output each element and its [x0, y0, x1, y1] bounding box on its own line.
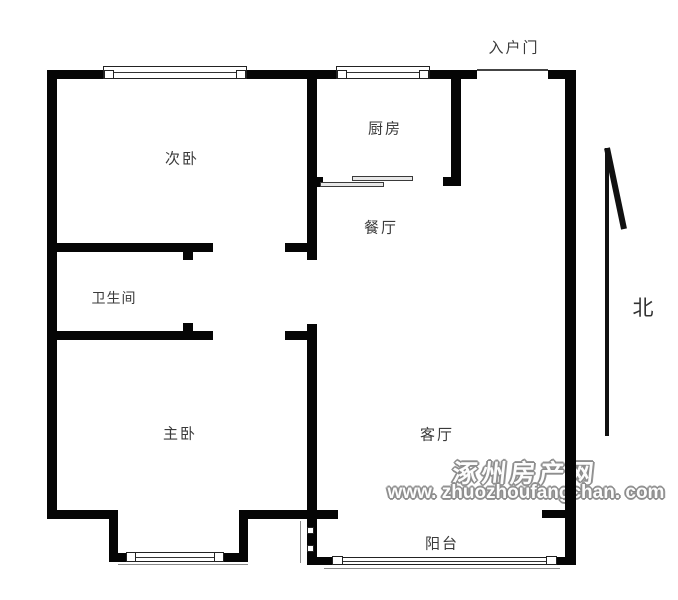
balcony-side-window-line — [300, 521, 301, 563]
window-master-bay — [126, 552, 224, 562]
bay-window-sill-line — [118, 564, 248, 565]
window-jamb — [546, 556, 557, 565]
wall-right — [565, 70, 576, 565]
room-label-kitchen: 厨房 — [368, 118, 402, 139]
window-jamb — [214, 552, 224, 562]
watermark-site-url: www. zhuozhoufangchan. com — [388, 482, 665, 504]
wall-top-mid — [247, 70, 336, 79]
room-label-secondary-bedroom: 次卧 — [165, 148, 199, 169]
room-label-master-bedroom: 主卧 — [163, 423, 197, 444]
wall-master-bottom-right — [239, 510, 338, 519]
wall-kitchen-right — [451, 70, 461, 177]
window-secondary-bedroom — [103, 66, 247, 79]
wall-balcony-bottom-left — [307, 557, 333, 565]
north-label: 北 — [633, 292, 654, 322]
window-kitchen — [336, 66, 430, 79]
window-jamb — [419, 70, 429, 79]
entrance-label: 入户门 — [488, 37, 539, 58]
window-mullion — [127, 557, 223, 558]
wall-left — [47, 70, 57, 519]
window-mullion — [337, 72, 429, 73]
window-mullion — [343, 561, 546, 562]
wall-balcony-bottom-right — [556, 557, 576, 565]
wall-bathroom-top-stub — [285, 243, 317, 252]
room-label-bathroom: 卫生间 — [92, 288, 137, 308]
kitchen-sliding-door-leaf — [352, 176, 413, 181]
wall-bathroom-top — [47, 243, 213, 252]
wall-kitchen-right-foot — [443, 177, 461, 186]
wall-central-lower — [307, 324, 317, 521]
window-jamb — [332, 556, 343, 565]
wall-central-upper — [307, 70, 317, 260]
room-label-balcony: 阳台 — [425, 533, 459, 554]
entrance-door-opening — [477, 69, 548, 71]
balcony-side-window-pane — [307, 545, 314, 552]
door-jamb-tick — [183, 323, 193, 331]
window-balcony — [342, 557, 547, 565]
north-arrow-icon — [592, 144, 636, 440]
window-jamb — [104, 70, 114, 79]
balcony-window-sill-line — [324, 568, 560, 569]
wall-bathroom-bottom-stub — [285, 331, 317, 340]
balcony-side-window-pane — [307, 527, 314, 534]
door-jamb-tick — [183, 252, 193, 260]
wall-bathroom-bottom — [47, 331, 213, 340]
wall-master-bottom-left — [47, 510, 118, 519]
kitchen-sliding-door-leaf — [320, 182, 384, 187]
floor-plan: 入户门 次卧 厨房 餐厅 卫生间 主卧 客厅 阳台 北 涿州房产网 www. z… — [0, 0, 678, 600]
wall-living-balcony-stub — [542, 510, 565, 518]
room-label-living: 客厅 — [420, 424, 454, 445]
window-mullion — [104, 72, 246, 73]
window-jamb — [126, 552, 136, 562]
room-label-dining: 餐厅 — [364, 217, 398, 238]
window-jamb — [236, 70, 246, 79]
window-jamb — [337, 70, 347, 79]
